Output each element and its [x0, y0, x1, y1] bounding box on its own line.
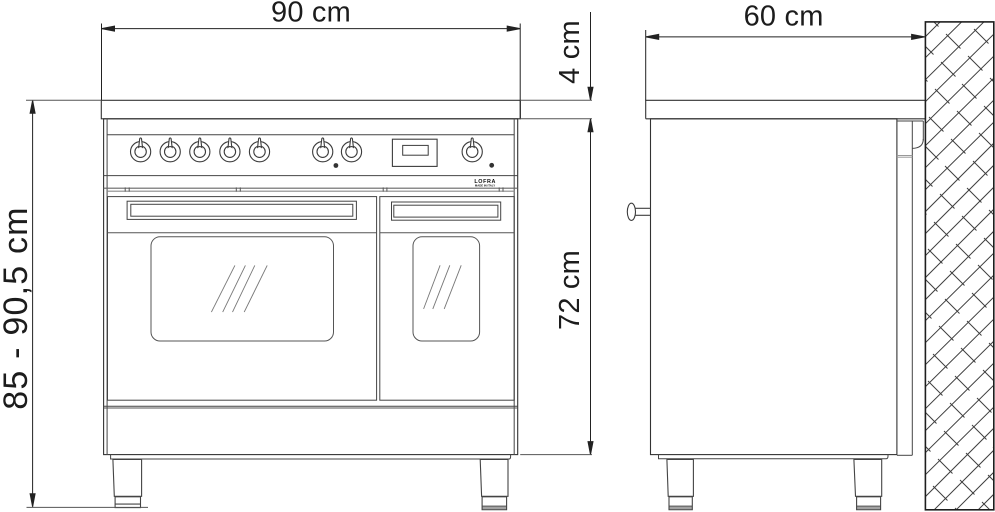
- svg-text:MADE IN ITALY: MADE IN ITALY: [475, 184, 495, 188]
- svg-text:90 cm: 90 cm: [271, 0, 351, 29]
- svg-text:85 - 90,5 cm: 85 - 90,5 cm: [0, 206, 35, 409]
- svg-text:60 cm: 60 cm: [744, 1, 824, 33]
- svg-text:72 cm: 72 cm: [554, 250, 586, 330]
- svg-text:4 cm: 4 cm: [554, 20, 586, 84]
